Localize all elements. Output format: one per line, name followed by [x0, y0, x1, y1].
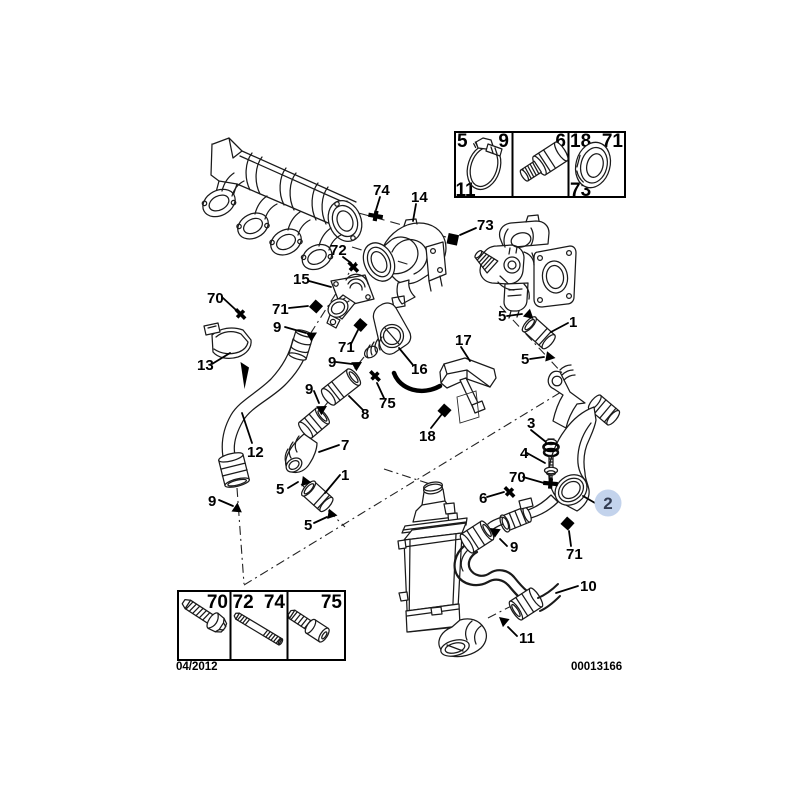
svg-text:16: 16 — [411, 361, 428, 378]
svg-text:18: 18 — [419, 428, 436, 445]
svg-text:5: 5 — [457, 131, 468, 152]
svg-text:71: 71 — [566, 546, 583, 563]
svg-text:7: 7 — [341, 437, 349, 454]
svg-text:5: 5 — [276, 481, 284, 498]
svg-text:9: 9 — [328, 354, 336, 371]
svg-text:5: 5 — [304, 517, 312, 534]
svg-text:14: 14 — [411, 189, 428, 206]
svg-text:74: 74 — [373, 182, 390, 199]
svg-text:2: 2 — [603, 494, 612, 513]
svg-text:75: 75 — [379, 395, 396, 412]
svg-text:72: 72 — [233, 592, 254, 613]
svg-text:13: 13 — [197, 357, 214, 374]
svg-text:72: 72 — [330, 242, 347, 259]
svg-text:17: 17 — [455, 332, 472, 349]
svg-text:70: 70 — [207, 290, 224, 307]
svg-text:9: 9 — [208, 493, 216, 510]
svg-text:00013166: 00013166 — [571, 661, 622, 673]
svg-text:6: 6 — [479, 490, 487, 507]
svg-text:5: 5 — [521, 351, 529, 368]
svg-text:5: 5 — [498, 308, 506, 325]
svg-text:11: 11 — [519, 630, 535, 647]
svg-text:1: 1 — [341, 467, 349, 484]
svg-text:9: 9 — [305, 381, 313, 398]
svg-text:10: 10 — [580, 578, 597, 595]
svg-text:15: 15 — [293, 271, 310, 288]
svg-text:70: 70 — [207, 592, 228, 613]
svg-text:1: 1 — [569, 314, 577, 331]
svg-text:73: 73 — [477, 217, 494, 234]
svg-text:9: 9 — [273, 319, 281, 336]
svg-text:9: 9 — [510, 539, 518, 556]
svg-text:04/2012: 04/2012 — [176, 661, 218, 673]
svg-text:74: 74 — [264, 592, 286, 613]
svg-text:12: 12 — [247, 444, 264, 461]
svg-text:71: 71 — [272, 301, 289, 318]
svg-text:75: 75 — [321, 592, 343, 613]
